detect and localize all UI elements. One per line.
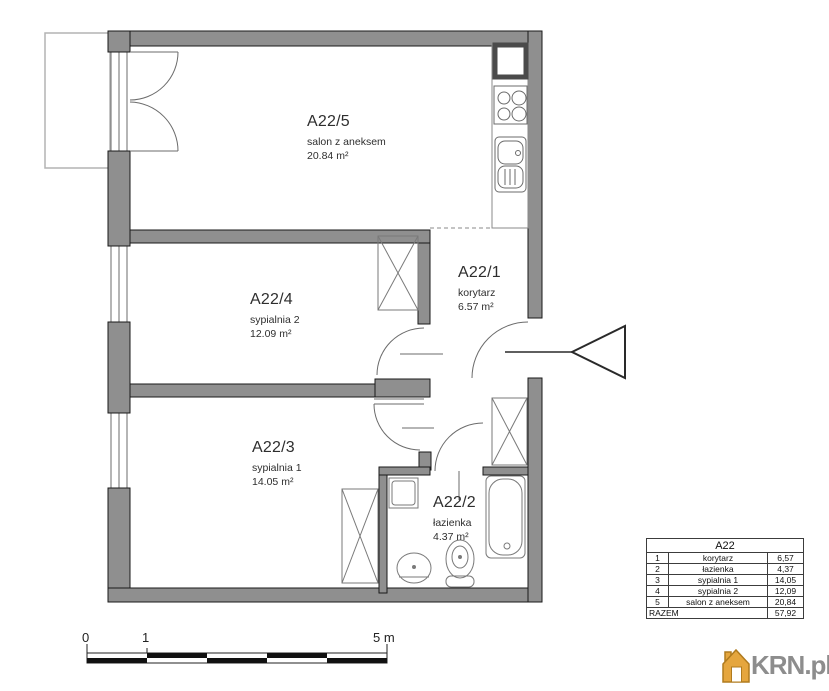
door-swing-entrance-icon: [472, 322, 528, 378]
door-swing-sypialnia1-icon: [374, 399, 434, 450]
vent-shaft-icon: [495, 45, 526, 77]
table-row: 5 salon z aneksem 20,84: [647, 597, 804, 608]
room-label-sypialnia2: A22/4 sypialnia 2 12.09 m²: [250, 291, 300, 341]
krn-logo-text[interactable]: KRN.pl: [751, 650, 829, 681]
table-row: 3 sypialnia 1 14,05: [647, 575, 804, 586]
room-id: A22/1: [458, 264, 501, 282]
washbasin-icon: [397, 553, 431, 583]
balcony-door-icon: [108, 52, 178, 151]
row-name: sypialnia 1: [669, 575, 768, 586]
room-area: 12.09 m²: [250, 328, 300, 342]
row-no: 4: [647, 586, 669, 597]
row-no: 3: [647, 575, 669, 586]
total-label: RAZEM: [647, 608, 768, 619]
row-area: 6,57: [768, 553, 804, 564]
window-icon: [108, 413, 130, 488]
bathtub-icon: [486, 476, 525, 558]
krn-logo-house-icon: [723, 650, 749, 682]
row-area: 20,84: [768, 597, 804, 608]
cooktop-icon: [494, 86, 527, 124]
room-name: salon z aneksem: [307, 136, 386, 150]
scale-bar: [87, 644, 387, 663]
kitchen-sink-icon: [495, 137, 526, 192]
door-swing-bathroom-icon: [435, 423, 483, 500]
room-name: sypialnia 1: [252, 462, 302, 476]
row-no: 1: [647, 553, 669, 564]
table-row: 1 korytarz 6,57: [647, 553, 804, 564]
room-name: korytarz: [458, 287, 501, 301]
balcony-outline: [45, 33, 110, 168]
row-no: 2: [647, 564, 669, 575]
scale-label-0: 0: [82, 630, 89, 645]
table-total-row: RAZEM 57,92: [647, 608, 804, 619]
row-name: łazienka: [669, 564, 768, 575]
room-id: A22/5: [307, 113, 386, 131]
washing-machine-icon: [389, 478, 418, 508]
row-name: korytarz: [669, 553, 768, 564]
table-row: 2 łazienka 4,37: [647, 564, 804, 575]
room-label-lazienka: A22/2 łazienka 4.37 m²: [433, 494, 476, 544]
room-area: 20.84 m²: [307, 150, 386, 164]
room-name: sypialnia 2: [250, 314, 300, 328]
door-swing-sypialnia2-icon: [377, 328, 443, 375]
room-id: A22/3: [252, 439, 302, 457]
row-area: 4,37: [768, 564, 804, 575]
room-area: 6.57 m²: [458, 301, 501, 315]
row-name: sypialnia 2: [669, 586, 768, 597]
wardrobe-icon: [342, 489, 378, 583]
room-label-salon: A22/5 salon z aneksem 20.84 m²: [307, 113, 386, 163]
entrance-arrow-icon: [505, 326, 625, 378]
room-name: łazienka: [433, 517, 476, 531]
room-area: 14.05 m²: [252, 476, 302, 490]
scale-label-1: 1: [142, 630, 149, 645]
room-id: A22/2: [433, 494, 476, 512]
total-area: 57,92: [768, 608, 804, 619]
floorplan-page: A22/5 salon z aneksem 20.84 m² A22/4 syp…: [0, 0, 829, 691]
room-label-korytarz: A22/1 korytarz 6.57 m²: [458, 264, 501, 314]
row-area: 12,09: [768, 586, 804, 597]
table-row: 4 sypialnia 2 12,09: [647, 586, 804, 597]
row-name: salon z aneksem: [669, 597, 768, 608]
wardrobe-icon: [378, 236, 418, 310]
row-no: 5: [647, 597, 669, 608]
room-label-sypialnia1: A22/3 sypialnia 1 14.05 m²: [252, 439, 302, 489]
scale-label-5m: 5 m: [373, 630, 395, 645]
wardrobe-icon: [492, 398, 527, 465]
toilet-icon: [446, 540, 474, 587]
area-table: A22 1 korytarz 6,57 2 łazienka 4,37 3 sy…: [646, 538, 804, 619]
row-area: 14,05: [768, 575, 804, 586]
room-id: A22/4: [250, 291, 300, 309]
window-icon: [108, 246, 130, 322]
area-table-title: A22: [647, 539, 804, 553]
room-area: 4.37 m²: [433, 531, 476, 545]
